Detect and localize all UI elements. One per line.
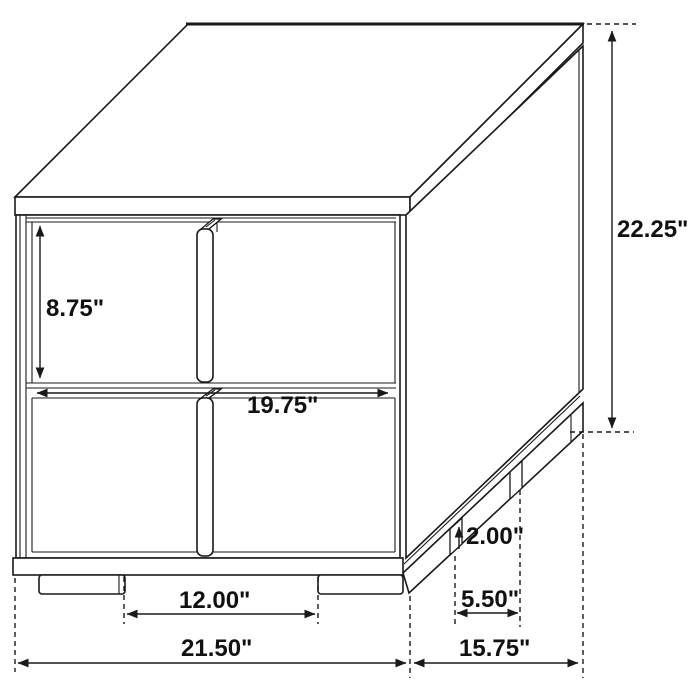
product-dimension-image: 8.75" 19.75" 22.25" 2.00" 5.50"	[0, 0, 700, 700]
dim-label-leg-height: 2.00"	[466, 523, 524, 550]
dim-leg-height: 2.00"	[459, 523, 524, 550]
base-front-rail	[13, 558, 403, 575]
dim-label-overall-width: 21.50"	[181, 635, 252, 662]
dim-label-drawer-width: 19.75"	[247, 392, 318, 419]
tabletop-front-edge	[15, 197, 410, 215]
upper-drawer-handle	[197, 229, 213, 382]
dim-front-leg-spacing: 12.00"	[124, 577, 318, 624]
dim-label-overall-depth: 15.75"	[459, 635, 530, 662]
dim-label-overall-height: 22.25"	[617, 216, 688, 243]
nightstand-dimension-diagram: 8.75" 19.75" 22.25" 2.00" 5.50"	[0, 0, 700, 700]
side-leg-front	[450, 518, 462, 555]
dim-label-drawer-height: 8.75"	[46, 295, 104, 322]
front-left-leg	[39, 575, 125, 594]
dim-overall-height: 22.25"	[570, 24, 688, 432]
dim-label-front-leg-spacing: 12.00"	[179, 587, 250, 614]
lower-drawer-handle	[197, 398, 213, 556]
dim-label-side-leg-spacing: 5.50"	[461, 586, 519, 613]
front-right-leg	[318, 575, 403, 594]
